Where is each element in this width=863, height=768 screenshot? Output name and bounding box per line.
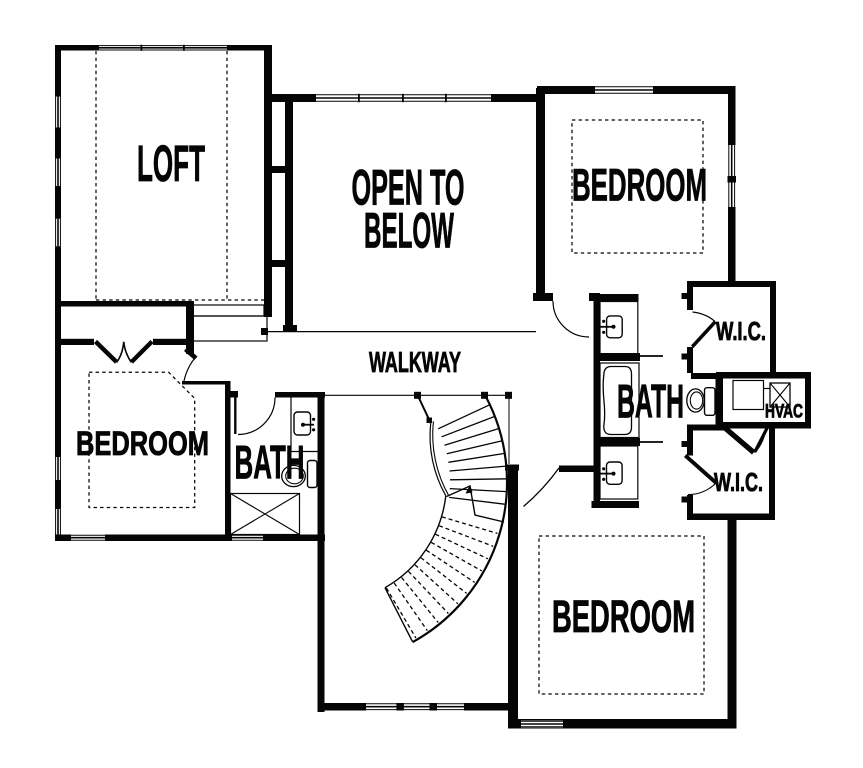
svg-text:BEDROOM: BEDROOM bbox=[76, 425, 209, 463]
svg-text:BEDROOM: BEDROOM bbox=[552, 591, 695, 642]
svg-text:WALKWAY: WALKWAY bbox=[369, 347, 461, 379]
svg-text:LOFT: LOFT bbox=[137, 135, 205, 192]
svg-text:W.I.C.: W.I.C. bbox=[714, 467, 763, 497]
svg-text:HVAC: HVAC bbox=[765, 402, 803, 423]
svg-text:BELOW: BELOW bbox=[364, 203, 454, 259]
svg-text:BEDROOM: BEDROOM bbox=[572, 160, 707, 211]
svg-text:W.I.C.: W.I.C. bbox=[716, 316, 766, 346]
svg-text:BATH: BATH bbox=[235, 437, 305, 490]
svg-text:BATH: BATH bbox=[617, 375, 684, 428]
